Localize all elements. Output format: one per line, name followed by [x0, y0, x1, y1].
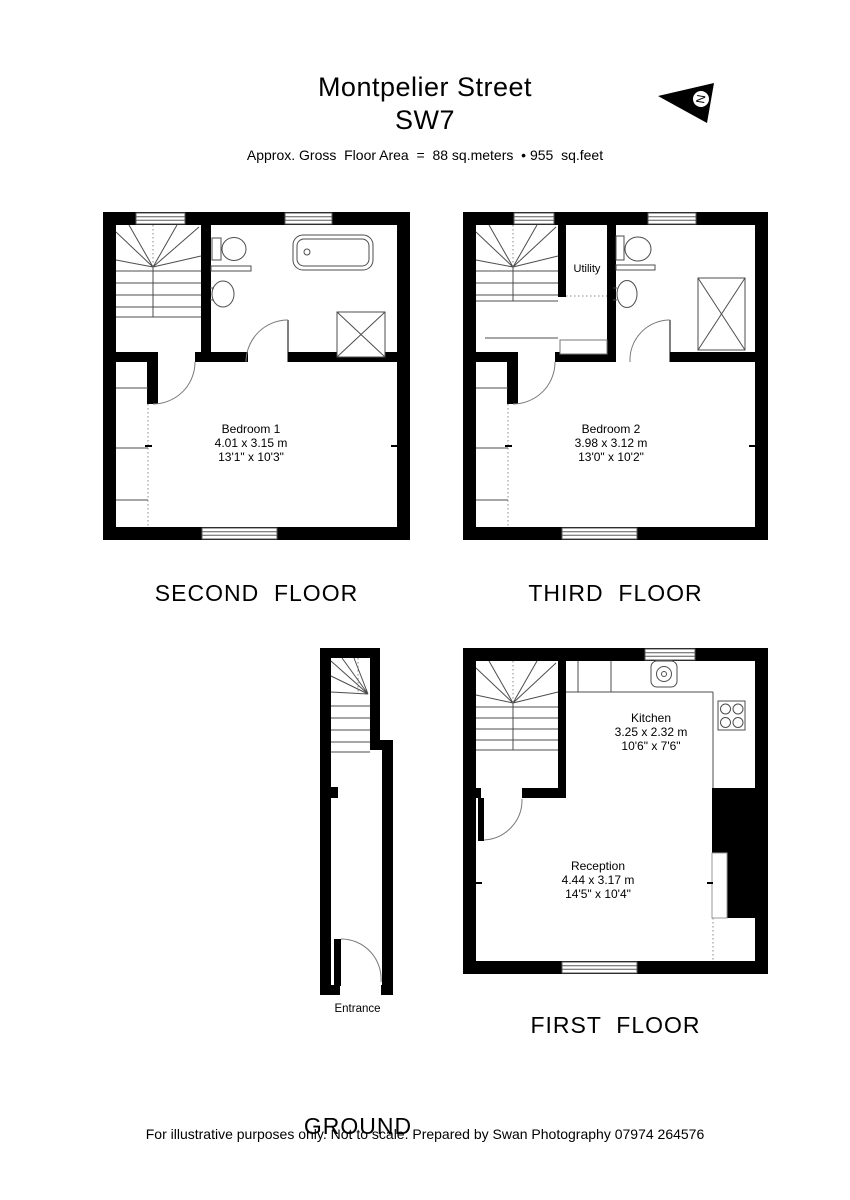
room-imperial: 13'0" x 10'2" [578, 450, 644, 464]
entrance-door-arc [341, 939, 381, 982]
room-imperial: 14'5" x 10'4" [565, 887, 631, 901]
kitchen-label-block: Kitchen 3.25 x 2.32 m 10'6" x 7'6" [615, 711, 688, 753]
utility-room-label: Utility [574, 263, 601, 275]
reception-door-arc [484, 799, 522, 840]
shelf-icon [211, 266, 251, 271]
third-floor-bathroom-fixtures [613, 236, 745, 350]
entrance-label: Entrance [320, 1003, 395, 1015]
room-imperial: 10'6" x 7'6" [621, 739, 680, 753]
room-metric: 4.01 x 3.15 m [215, 436, 288, 450]
third-floor-stairs [476, 225, 558, 338]
first-floor-walls [463, 648, 768, 974]
room-name: Reception [571, 859, 625, 873]
reception-label-block: Reception 4.44 x 3.17 m 14'5" x 10'4" [562, 859, 635, 901]
floor-area-subtitle: Approx. Gross Floor Area = 88 sq.meters … [0, 147, 850, 163]
ground-floor-plan [320, 648, 395, 995]
third-floor-windows [514, 213, 696, 539]
chimney-recess [712, 853, 727, 918]
bedroom2-label-block: Bedroom 2 3.98 x 3.12 m 13'0" x 10'2" [575, 422, 648, 464]
first-floor-plan: Kitchen 3.25 x 2.32 m 10'6" x 7'6" Recep… [463, 648, 768, 974]
toilet-icon [625, 237, 651, 261]
north-arrow-icon: N [650, 78, 730, 130]
first-floor-stairs [476, 661, 558, 750]
second-floor-plan: Bedroom 1 4.01 x 3.15 m 13'1" x 10'3" [103, 212, 410, 540]
floorplan-page: Montpelier Street SW7 Approx. Gross Floo… [0, 0, 850, 1200]
toilet-icon [222, 238, 246, 261]
third-floor-walls [463, 212, 768, 540]
basin-icon [212, 281, 234, 307]
room-metric: 3.25 x 2.32 m [615, 725, 688, 739]
second-floor-label: SECOND FLOOR [103, 580, 410, 607]
room-name: Kitchen [631, 711, 671, 725]
bedroom1-label-block: Bedroom 1 4.01 x 3.15 m 13'1" x 10'3" [215, 422, 288, 464]
second-floor-bathroom-fixtures [210, 235, 385, 357]
room-metric: 4.44 x 3.17 m [562, 873, 635, 887]
first-floor-windows [562, 649, 695, 973]
room-metric: 3.98 x 3.12 m [575, 436, 648, 450]
disclaimer-footer: For illustrative purposes only. Not to s… [0, 1126, 850, 1142]
ground-floor-label: GROUND FLOOR [258, 1044, 458, 1200]
basin-icon [617, 281, 637, 308]
ground-floor-walls [320, 648, 393, 995]
third-floor-plan: Utility Bedroom 2 3.98 x 3.12 m 13'0" x … [463, 212, 768, 540]
first-floor-label: FIRST FLOOR [463, 1012, 768, 1039]
third-floor-label: THIRD FLOOR [463, 580, 768, 607]
toilet-cistern-icon [212, 238, 221, 260]
room-name: Bedroom 1 [222, 422, 281, 436]
second-floor-stairs [116, 225, 201, 317]
toilet-cistern-icon [616, 236, 624, 260]
room-imperial: 13'1" x 10'3" [218, 450, 284, 464]
ground-floor-stairs [331, 658, 370, 752]
room-name: Bedroom 2 [582, 422, 641, 436]
stair-halfwall [560, 340, 607, 354]
shelf-icon [616, 265, 655, 270]
